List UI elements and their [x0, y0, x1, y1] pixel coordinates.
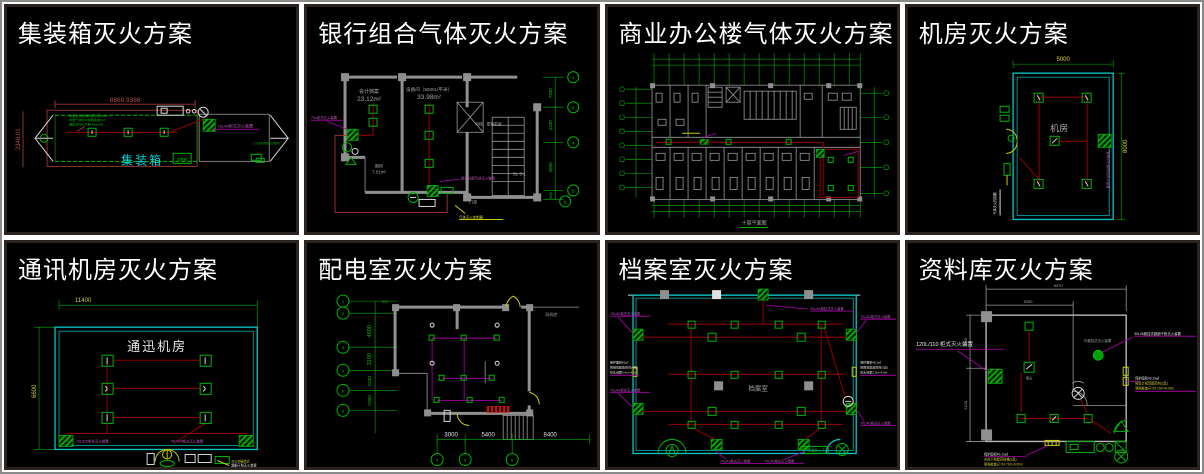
- svg-text:储压式ABC干粉 4kg×4只: 储压式ABC干粉 4kg×4只: [69, 121, 103, 126]
- svg-text:气体灭火控制器: 气体灭火控制器: [992, 191, 997, 214]
- svg-text:6: 6: [564, 199, 567, 204]
- dimension-lines: 11400 6600: [32, 298, 257, 449]
- svg-text:BL-5-1: BL-5-1: [513, 171, 526, 176]
- svg-text:70L/W柜式灭火装置: 70L/W柜式灭火装置: [217, 122, 253, 128]
- svg-text:设备间（5000L/平米）: 设备间（5000L/平米）: [406, 86, 452, 93]
- roof-equipment: [157, 106, 208, 117]
- upper-rooms: [656, 85, 856, 137]
- device-label-mid: 组合分配气体灭火管网: [461, 175, 495, 180]
- panel-power-room-plan[interactable]: 配电室灭火方案 1 2 3 4 5 6 310 4600 3100: [304, 240, 599, 471]
- dimension-lines: 5000 8000: [1013, 57, 1129, 219]
- svg-text:7300: 7300: [548, 88, 553, 99]
- svg-text:5400: 5400: [482, 432, 496, 438]
- svg-text:600: 600: [548, 191, 553, 198]
- svg-text:保护面积62㎡: 保护面积62㎡: [610, 359, 628, 364]
- corridor-piping: [656, 133, 858, 197]
- elevator-shaft: [457, 102, 483, 132]
- svg-text:1: 1: [572, 75, 575, 80]
- cabinet-extinguisher-hatch: [988, 369, 1002, 383]
- room-label: 通迅机房: [127, 339, 187, 354]
- svg-text:23.12m²: 23.12m²: [357, 96, 382, 103]
- caption: 十层平面图: [740, 219, 768, 227]
- piping-and-nozzles: [1019, 93, 1091, 188]
- dim-width-label: 11400: [75, 298, 92, 304]
- room-label: 集装箱: [121, 152, 163, 167]
- panel-container-plan[interactable]: 集装箱灭火方案 8860.9386 2348.01: [4, 4, 299, 235]
- page-title: 集装箱灭火方案: [18, 14, 193, 49]
- wall-devices: [633, 329, 856, 449]
- svg-text:保护面积46.2㎡: 保护面积46.2㎡: [860, 359, 881, 364]
- page-title: 资料库灭火方案: [919, 250, 1094, 285]
- svg-text:70L/A2柜式灭火装置: 70L/A2柜式灭火装置: [860, 420, 891, 425]
- hang-device-label: 30L/3t悬挂式超细干粉灭火装置: [1134, 331, 1181, 336]
- page-title: 商业办公楼气体灭火方案: [619, 14, 894, 49]
- svg-text:3000: 3000: [445, 432, 459, 438]
- svg-text:5: 5: [572, 188, 575, 193]
- device-label: 管网式七氟丙烷灭火装置: [1106, 151, 1111, 189]
- page-title: 档案室灭火方案: [619, 250, 794, 285]
- room-label-top: 风机房: [545, 311, 557, 317]
- svg-text:喷嘴覆盖尺寸4.72m×6.00m: 喷嘴覆盖尺寸4.72m×6.00m: [1135, 385, 1174, 390]
- svg-text:门禁: 门禁: [469, 198, 477, 204]
- svg-text:按设计规范配药剂(3具): 按设计规范配药剂(3具): [1135, 380, 1168, 385]
- left-device-cluster: 70L柜式灭火装置: [311, 115, 358, 164]
- page-title: 机房灭火方案: [919, 14, 1069, 49]
- room-label: 机房: [1050, 122, 1068, 133]
- svg-text:1: 1: [342, 299, 345, 304]
- svg-text:按规范配置药剂(4具): 按规范配置药剂(4具): [610, 364, 638, 369]
- device-label-right: 70L/120柜式灭火装置: [171, 438, 204, 443]
- bottom-note: 保护面积40.13㎡ 对应干粉配药规格(3具) 喷嘴覆盖尺寸4.72m×6.00…: [984, 445, 1048, 466]
- grid-dimensions-left: [619, 87, 652, 198]
- wall-device: 管网式七氟丙烷灭火装置: [1098, 134, 1111, 189]
- dim-height-label: 8000: [1123, 139, 1129, 153]
- door-and-valves: 30L/3t悬挂式 超细干粉灭火装置: [147, 449, 257, 467]
- svg-text:3: 3: [342, 345, 345, 350]
- grid-dimensions-right: 1 2 4 5 6 7300 2400 3600 600: [543, 72, 579, 207]
- svg-text:保护面积40.13㎡: 保护面积40.13㎡: [984, 451, 1009, 456]
- svg-text:十层平面图: 十层平面图: [741, 219, 766, 226]
- svg-text:3600: 3600: [548, 162, 553, 173]
- wall-device-right: 保护面积40.13㎡ 按设计规范配药剂(3具) 喷嘴覆盖尺寸4.72m×6.00…: [1123, 367, 1196, 391]
- piping-magenta: [429, 323, 504, 402]
- dim-top-small: 310: [382, 300, 388, 304]
- device-callout: 70L/W柜式灭火装置: [212, 122, 259, 129]
- svg-text:电梯、楼梯前室: 电梯、楼梯前室: [475, 121, 502, 126]
- panel-data-library-plan[interactable]: 资料库灭火方案 8470 5200 3000 2100: [905, 240, 1200, 471]
- grid-dimensions-top: [652, 53, 860, 85]
- room-labels: 会计档案 23.12m² 设备间（5000L/平米） 33.98m² 厕所 7.…: [357, 86, 526, 204]
- svg-text:4: 4: [436, 457, 439, 462]
- walls: [392, 304, 579, 416]
- panel-office-plan[interactable]: 商业办公楼气体灭火方案: [605, 4, 900, 235]
- dim-height-label: 2348.01: [16, 128, 22, 150]
- room-label: 档案室: [748, 383, 768, 392]
- piping-and-nozzles: [67, 355, 247, 442]
- stairs: [503, 415, 533, 439]
- main-device-label: 120L/110 柜式灭火装置: [916, 340, 974, 348]
- alarm-device: [1072, 381, 1084, 399]
- control-box: 控制柜: [173, 153, 191, 163]
- svg-text:33.98m²: 33.98m²: [417, 94, 442, 101]
- cable-tray: [487, 406, 509, 412]
- svg-text:70L/A2柜式灭火装置: 70L/A2柜式灭火装置: [720, 458, 751, 463]
- grid-dimensions-right: [860, 87, 889, 197]
- panel-archive-room-plan[interactable]: 档案室灭火方案: [605, 240, 900, 471]
- page-title: 银行组合气体灭火方案: [318, 14, 568, 49]
- svg-text:控制柜: 控制柜: [177, 156, 188, 161]
- svg-text:5: 5: [342, 388, 345, 393]
- svg-text:4: 4: [572, 140, 575, 145]
- svg-text:4600: 4600: [367, 325, 373, 337]
- nozzle-label: 喷头: [1025, 375, 1032, 380]
- svg-text:5: 5: [464, 457, 467, 462]
- svg-text:喷嘴覆盖尺寸4.72m×6.00m: 喷嘴覆盖尺寸4.72m×6.00m: [984, 461, 1023, 466]
- dimension-lines-left: 310 4600 3100 2200 2000: [367, 300, 388, 433]
- svg-text:按规范配置药剂(3具): 按规范配置药剂(3具): [860, 364, 888, 369]
- dim-width-label: 5000: [1056, 57, 1070, 63]
- device-label-bottom: 气体灭火控制器: [459, 214, 483, 219]
- panel-machine-room-plan[interactable]: 机房灭火方案 5000 8000 机房: [905, 4, 1200, 235]
- svg-text:2: 2: [342, 311, 345, 316]
- doors-and-devices: 乙级防火门: [658, 396, 853, 456]
- svg-text:70L/A2柜式灭火装置: 70L/A2柜式灭火装置: [860, 314, 891, 319]
- dim-width-label: 8860.9386: [110, 97, 141, 104]
- dim-mid-label: 5200: [1023, 299, 1033, 304]
- svg-text:会计档案: 会计档案: [359, 88, 379, 95]
- circle-label: 内悬挂式灭火装置: [1084, 338, 1112, 343]
- panel-bank-plan[interactable]: 银行组合气体灭火方案: [304, 4, 599, 235]
- svg-text:7.01m²: 7.01m²: [372, 169, 386, 174]
- control-panel-note: 气体灭火控制器: [992, 189, 1000, 215]
- dimension-lines: 8470 5200 3000 2100: [963, 283, 1126, 441]
- svg-text:超细干粉灭火装置: 超细干粉灭火装置: [231, 462, 256, 467]
- svg-text:2: 2: [572, 105, 575, 110]
- door-devices: [1000, 106, 1017, 185]
- dim-height-label: 6600: [32, 383, 38, 397]
- dimension-lines-bottom: 3000 5400 8400 4 5 6: [431, 432, 589, 465]
- grid-dimensions-bottom: [652, 199, 860, 217]
- device-label-left: 70L柜式灭火装置: [311, 115, 338, 120]
- svg-text:2400: 2400: [548, 120, 553, 131]
- svg-text:30L/A2悬挂式灭火装置: 30L/A2悬挂式灭火装置: [810, 306, 844, 311]
- svg-text:70L/A2柜式灭火装置: 70L/A2柜式灭火装置: [610, 311, 641, 316]
- page-title: 通讯机房灭火方案: [18, 250, 218, 285]
- svg-text:3100: 3100: [367, 353, 373, 365]
- corner-devices: 70L/120柜式灭火装置 70L/120柜式灭火装置: [59, 435, 253, 446]
- svg-text:70L/A2柜式灭火装置: 70L/A2柜式灭火装置: [764, 458, 795, 463]
- svg-text:对应干粉配药规格(3具): 对应干粉配药规格(3具): [984, 456, 1017, 461]
- piping-and-nozzles: [643, 300, 846, 439]
- page-title: 配电室灭火方案: [318, 250, 493, 285]
- lower-offices: [656, 147, 814, 199]
- cad-thumbnail-grid: 集装箱灭火方案 8860.9386 2348.01: [0, 0, 1204, 474]
- staircase: [492, 117, 524, 195]
- side-label: L=18.0006×1.0000: [253, 141, 280, 145]
- device-label-left: 70L/120柜式灭火装置: [76, 438, 109, 443]
- hanging-extinguisher: 内悬挂式灭火装置 30L/3t悬挂式超细干粉灭火装置: [1084, 331, 1196, 360]
- svg-text:喷头间距3.0m~4.0m: 喷头间距3.0m~4.0m: [610, 369, 638, 374]
- svg-text:6: 6: [342, 408, 345, 413]
- svg-text:70L/A2柜式灭火装置: 70L/A2柜式灭火装置: [610, 387, 641, 392]
- svg-text:2100: 2100: [963, 400, 968, 410]
- corner-label: 乙级防火门: [808, 447, 824, 452]
- svg-text:厕所: 厕所: [375, 162, 383, 169]
- svg-text:2200: 2200: [367, 375, 373, 386]
- svg-text:6: 6: [511, 457, 514, 462]
- svg-text:保护面积40.13㎡: 保护面积40.13㎡: [1135, 375, 1160, 380]
- svg-text:8400: 8400: [544, 432, 558, 438]
- panel-telecom-room-plan[interactable]: 通讯机房灭火方案 11400 6600 通迅机房: [4, 240, 299, 471]
- svg-text:4: 4: [342, 368, 345, 373]
- svg-text:2000: 2000: [367, 394, 373, 405]
- svg-text:喷头间距3.0m~4.0m: 喷头间距3.0m~4.0m: [860, 369, 888, 374]
